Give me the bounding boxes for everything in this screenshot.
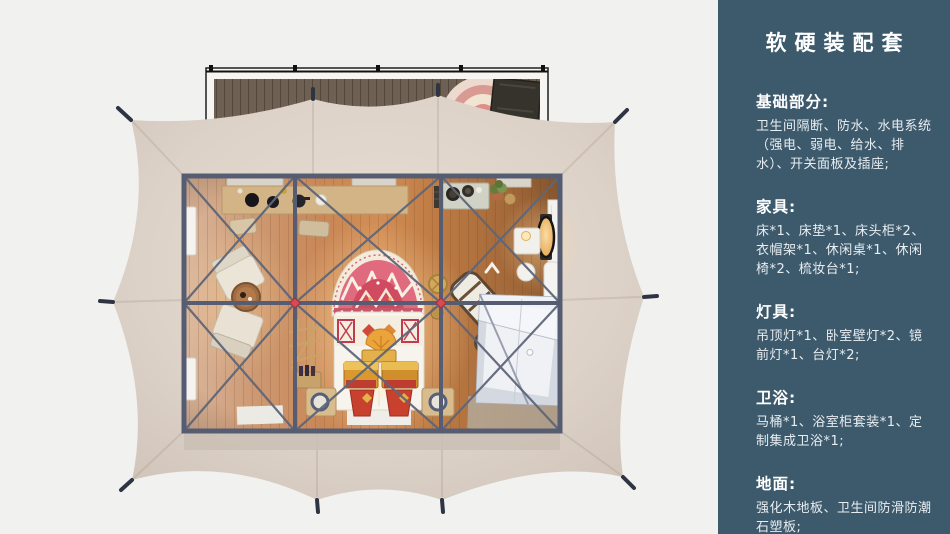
- section-heading: 卫浴:: [756, 386, 932, 408]
- section-bathroom: 卫浴: 马桶*1、浴室柜套装*1、定制集成卫浴*1;: [756, 386, 932, 451]
- section-basics: 基础部分: 卫生间隔断、防水、水电系统（强电、弱电、给水、排水）、开关面板及插座…: [756, 90, 932, 174]
- section-body: 卫生间隔断、防水、水电系统（强电、弱电、给水、排水）、开关面板及插座;: [756, 117, 932, 174]
- table-lamp: [522, 232, 531, 241]
- section-heading: 家具:: [756, 195, 932, 217]
- section-body: 强化木地板、卫生间防滑防潮石塑板;: [756, 499, 932, 534]
- section-body: 吊顶灯*1、卧室壁灯*2、镜前灯*1、台灯*2;: [756, 327, 932, 365]
- basket: [505, 194, 516, 205]
- section-heading: 灯具:: [756, 300, 932, 322]
- section-heading: 地面:: [756, 472, 932, 494]
- section-body: 马桶*1、浴室柜套装*1、定制集成卫浴*1;: [756, 413, 932, 451]
- floorplan-render: [0, 0, 718, 534]
- section-furniture: 家具: 床*1、床垫*1、床头柜*2、衣帽架*1、休闲桌*1、休闲椅*2、梳妆台…: [756, 195, 932, 279]
- console-desk: [222, 186, 408, 214]
- section-lighting: 灯具: 吊顶灯*1、卧室壁灯*2、镜前灯*1、台灯*2;: [756, 300, 932, 365]
- section-heading: 基础部分:: [756, 90, 932, 112]
- section-body: 床*1、床垫*1、床头柜*2、衣帽架*1、休闲桌*1、休闲椅*2、梳妆台*1;: [756, 222, 932, 279]
- room: [177, 176, 582, 440]
- hat: [245, 193, 259, 207]
- page: 软硬装配套 基础部分: 卫生间隔断、防水、水电系统（强电、弱电、给水、排水）、开…: [0, 0, 950, 534]
- section-flooring: 地面: 强化木地板、卫生间防滑防潮石塑板;: [756, 472, 932, 534]
- sink: [527, 349, 533, 355]
- info-panel: 软硬装配套 基础部分: 卫生间隔断、防水、水电系统（强电、弱电、给水、排水）、开…: [718, 0, 950, 534]
- round-tea-table: [232, 283, 260, 311]
- panel-sections: 基础部分: 卫生间隔断、防水、水电系统（强电、弱电、给水、排水）、开关面板及插座…: [718, 57, 950, 534]
- panel-title: 软硬装配套: [718, 0, 950, 57]
